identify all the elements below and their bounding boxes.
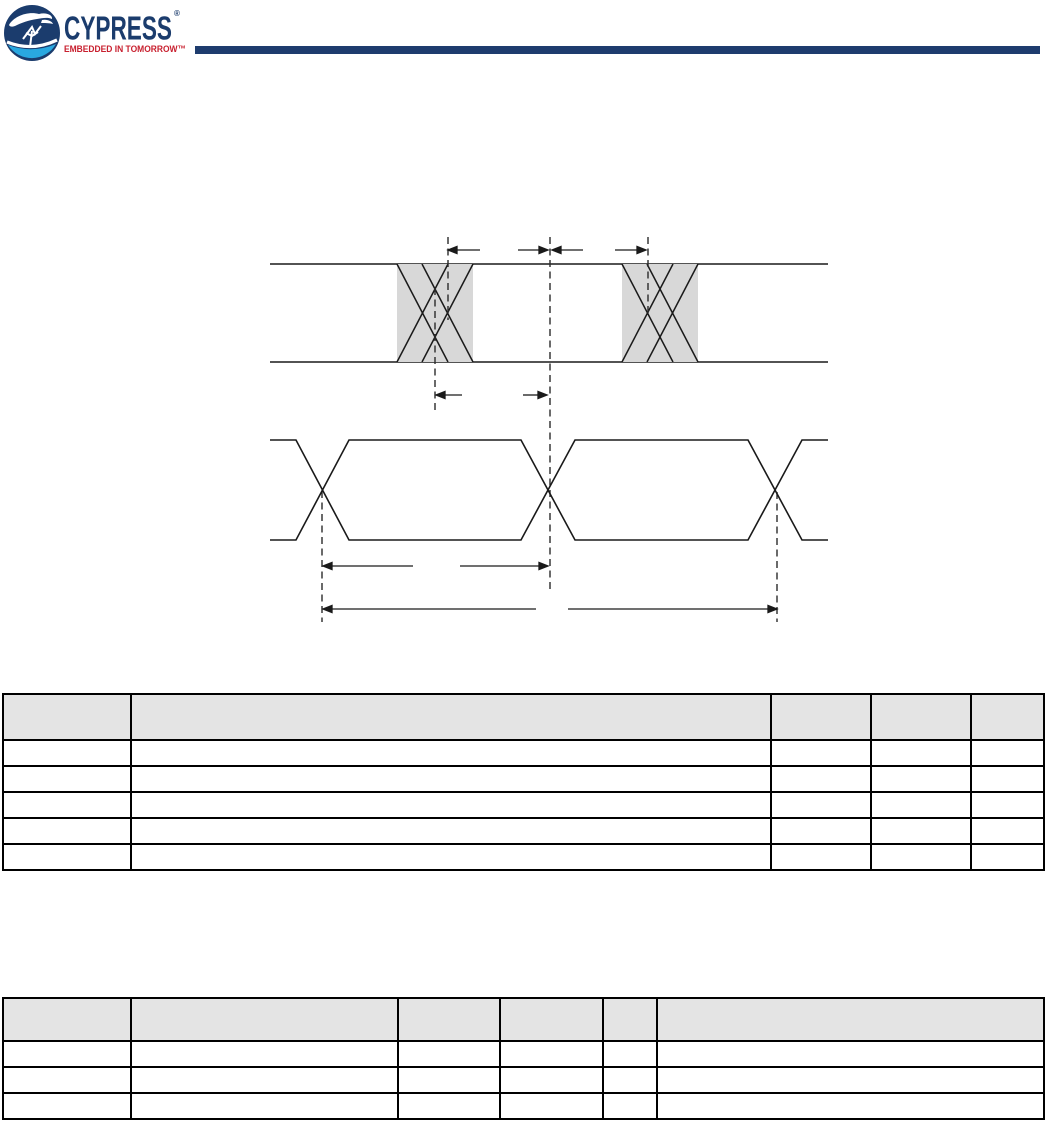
- table-cell: [131, 844, 771, 870]
- table-cell: [3, 1041, 131, 1067]
- table-cell: [771, 844, 871, 870]
- table-row: [3, 1041, 1044, 1067]
- table-cell: [971, 766, 1044, 792]
- column-header-cell: [603, 998, 657, 1041]
- table-row: [3, 1067, 1044, 1093]
- table-row: [3, 766, 1044, 792]
- timing-diagram: [240, 228, 860, 638]
- table-row: [3, 1093, 1044, 1119]
- table-cell: [771, 766, 871, 792]
- table-cell: [771, 818, 871, 844]
- transition-hatch-right: [622, 264, 698, 362]
- table-cell: [500, 1041, 603, 1067]
- table-cell: [603, 1067, 657, 1093]
- table-cell: [3, 740, 131, 766]
- table-cell: [3, 792, 131, 818]
- table-cell: [871, 818, 971, 844]
- table-cell: [971, 844, 1044, 870]
- column-header-cell: [398, 998, 500, 1041]
- table-cell: [131, 1067, 398, 1093]
- upper-table: [2, 693, 1045, 871]
- column-header-cell: [500, 998, 603, 1041]
- table-cell: [131, 1041, 398, 1067]
- table-cell: [603, 1041, 657, 1067]
- table-cell: [3, 766, 131, 792]
- table-header-row: [3, 998, 1044, 1041]
- table-cell: [398, 1093, 500, 1119]
- table-cell: [871, 844, 971, 870]
- table-cell: [603, 1093, 657, 1119]
- table-cell: [871, 766, 971, 792]
- table-row: [3, 740, 1044, 766]
- table-cell: [771, 740, 871, 766]
- table-cell: [131, 818, 771, 844]
- table-cell: [3, 1093, 131, 1119]
- cypress-logo: CYPRESS ® EMBEDDED IN TOMORROW™: [2, 3, 190, 63]
- table-cell: [500, 1093, 603, 1119]
- table-cell: [657, 1041, 1044, 1067]
- table-cell: [131, 792, 771, 818]
- dimension-arrows-middle: [436, 392, 547, 399]
- dimension-arrows-top: [448, 247, 646, 254]
- header-rule-bar: [195, 46, 1040, 54]
- table-cell: [871, 792, 971, 818]
- table-cell: [398, 1041, 500, 1067]
- column-header-cell: [971, 694, 1044, 740]
- table-cell: [398, 1067, 500, 1093]
- lower-table: [2, 997, 1045, 1120]
- column-header-cell: [3, 998, 131, 1041]
- table-cell: [500, 1067, 603, 1093]
- table-cell: [657, 1093, 1044, 1119]
- dimension-arrows-period2: [323, 606, 777, 613]
- dashed-guide-lines: [322, 237, 777, 622]
- column-header-cell: [3, 694, 131, 740]
- cypress-logo-mark: [4, 5, 60, 61]
- dimension-arrows-period1: [323, 563, 548, 570]
- column-header-cell: [871, 694, 971, 740]
- table-cell: [971, 792, 1044, 818]
- upper-signal-rails: [270, 264, 828, 362]
- table-cell: [131, 1093, 398, 1119]
- column-header-cell: [771, 694, 871, 740]
- table-cell: [131, 740, 771, 766]
- registered-mark: ®: [174, 9, 180, 18]
- table-row: [3, 818, 1044, 844]
- table-row: [3, 792, 1044, 818]
- datasheet-page: CYPRESS ® EMBEDDED IN TOMORROW™: [0, 0, 1045, 1127]
- table-cell: [131, 766, 771, 792]
- table-cell: [3, 1067, 131, 1093]
- column-header-cell: [131, 694, 771, 740]
- table-row: [3, 844, 1044, 870]
- table-cell: [871, 740, 971, 766]
- table-cell: [971, 818, 1044, 844]
- table-cell: [657, 1067, 1044, 1093]
- table-header-row: [3, 694, 1044, 740]
- table-cell: [771, 792, 871, 818]
- brand-wordmark: CYPRESS: [64, 10, 172, 47]
- clock-waveform: [270, 440, 828, 540]
- table-cell: [971, 740, 1044, 766]
- column-header-cell: [657, 998, 1044, 1041]
- brand-tagline: EMBEDDED IN TOMORROW™: [64, 44, 186, 55]
- column-header-cell: [131, 998, 398, 1041]
- table-cell: [3, 818, 131, 844]
- table-cell: [3, 844, 131, 870]
